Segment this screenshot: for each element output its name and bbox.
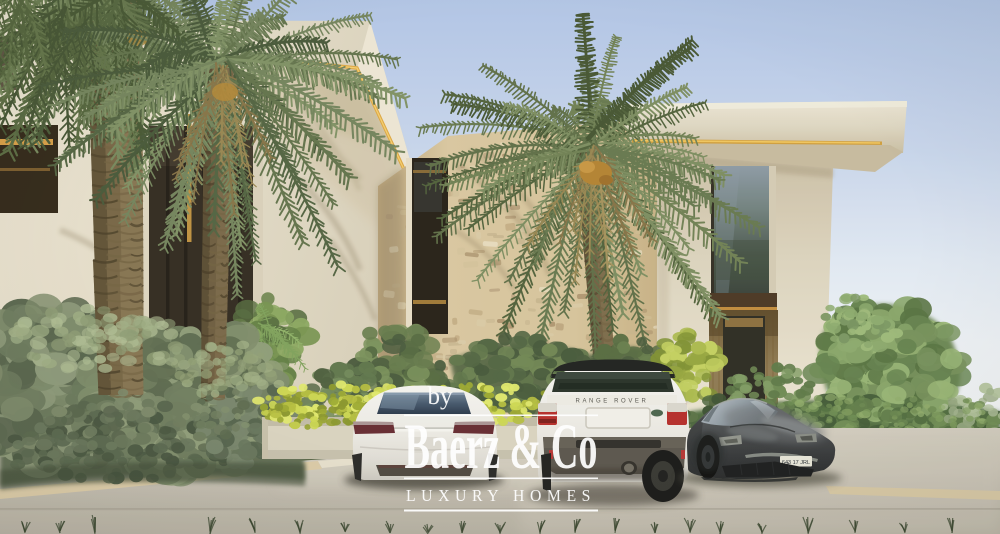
svg-text:Baerz & Co: Baerz & Co xyxy=(405,411,598,483)
svg-text:LUXURY HOMES: LUXURY HOMES xyxy=(406,486,596,505)
svg-text:by: by xyxy=(428,383,454,410)
